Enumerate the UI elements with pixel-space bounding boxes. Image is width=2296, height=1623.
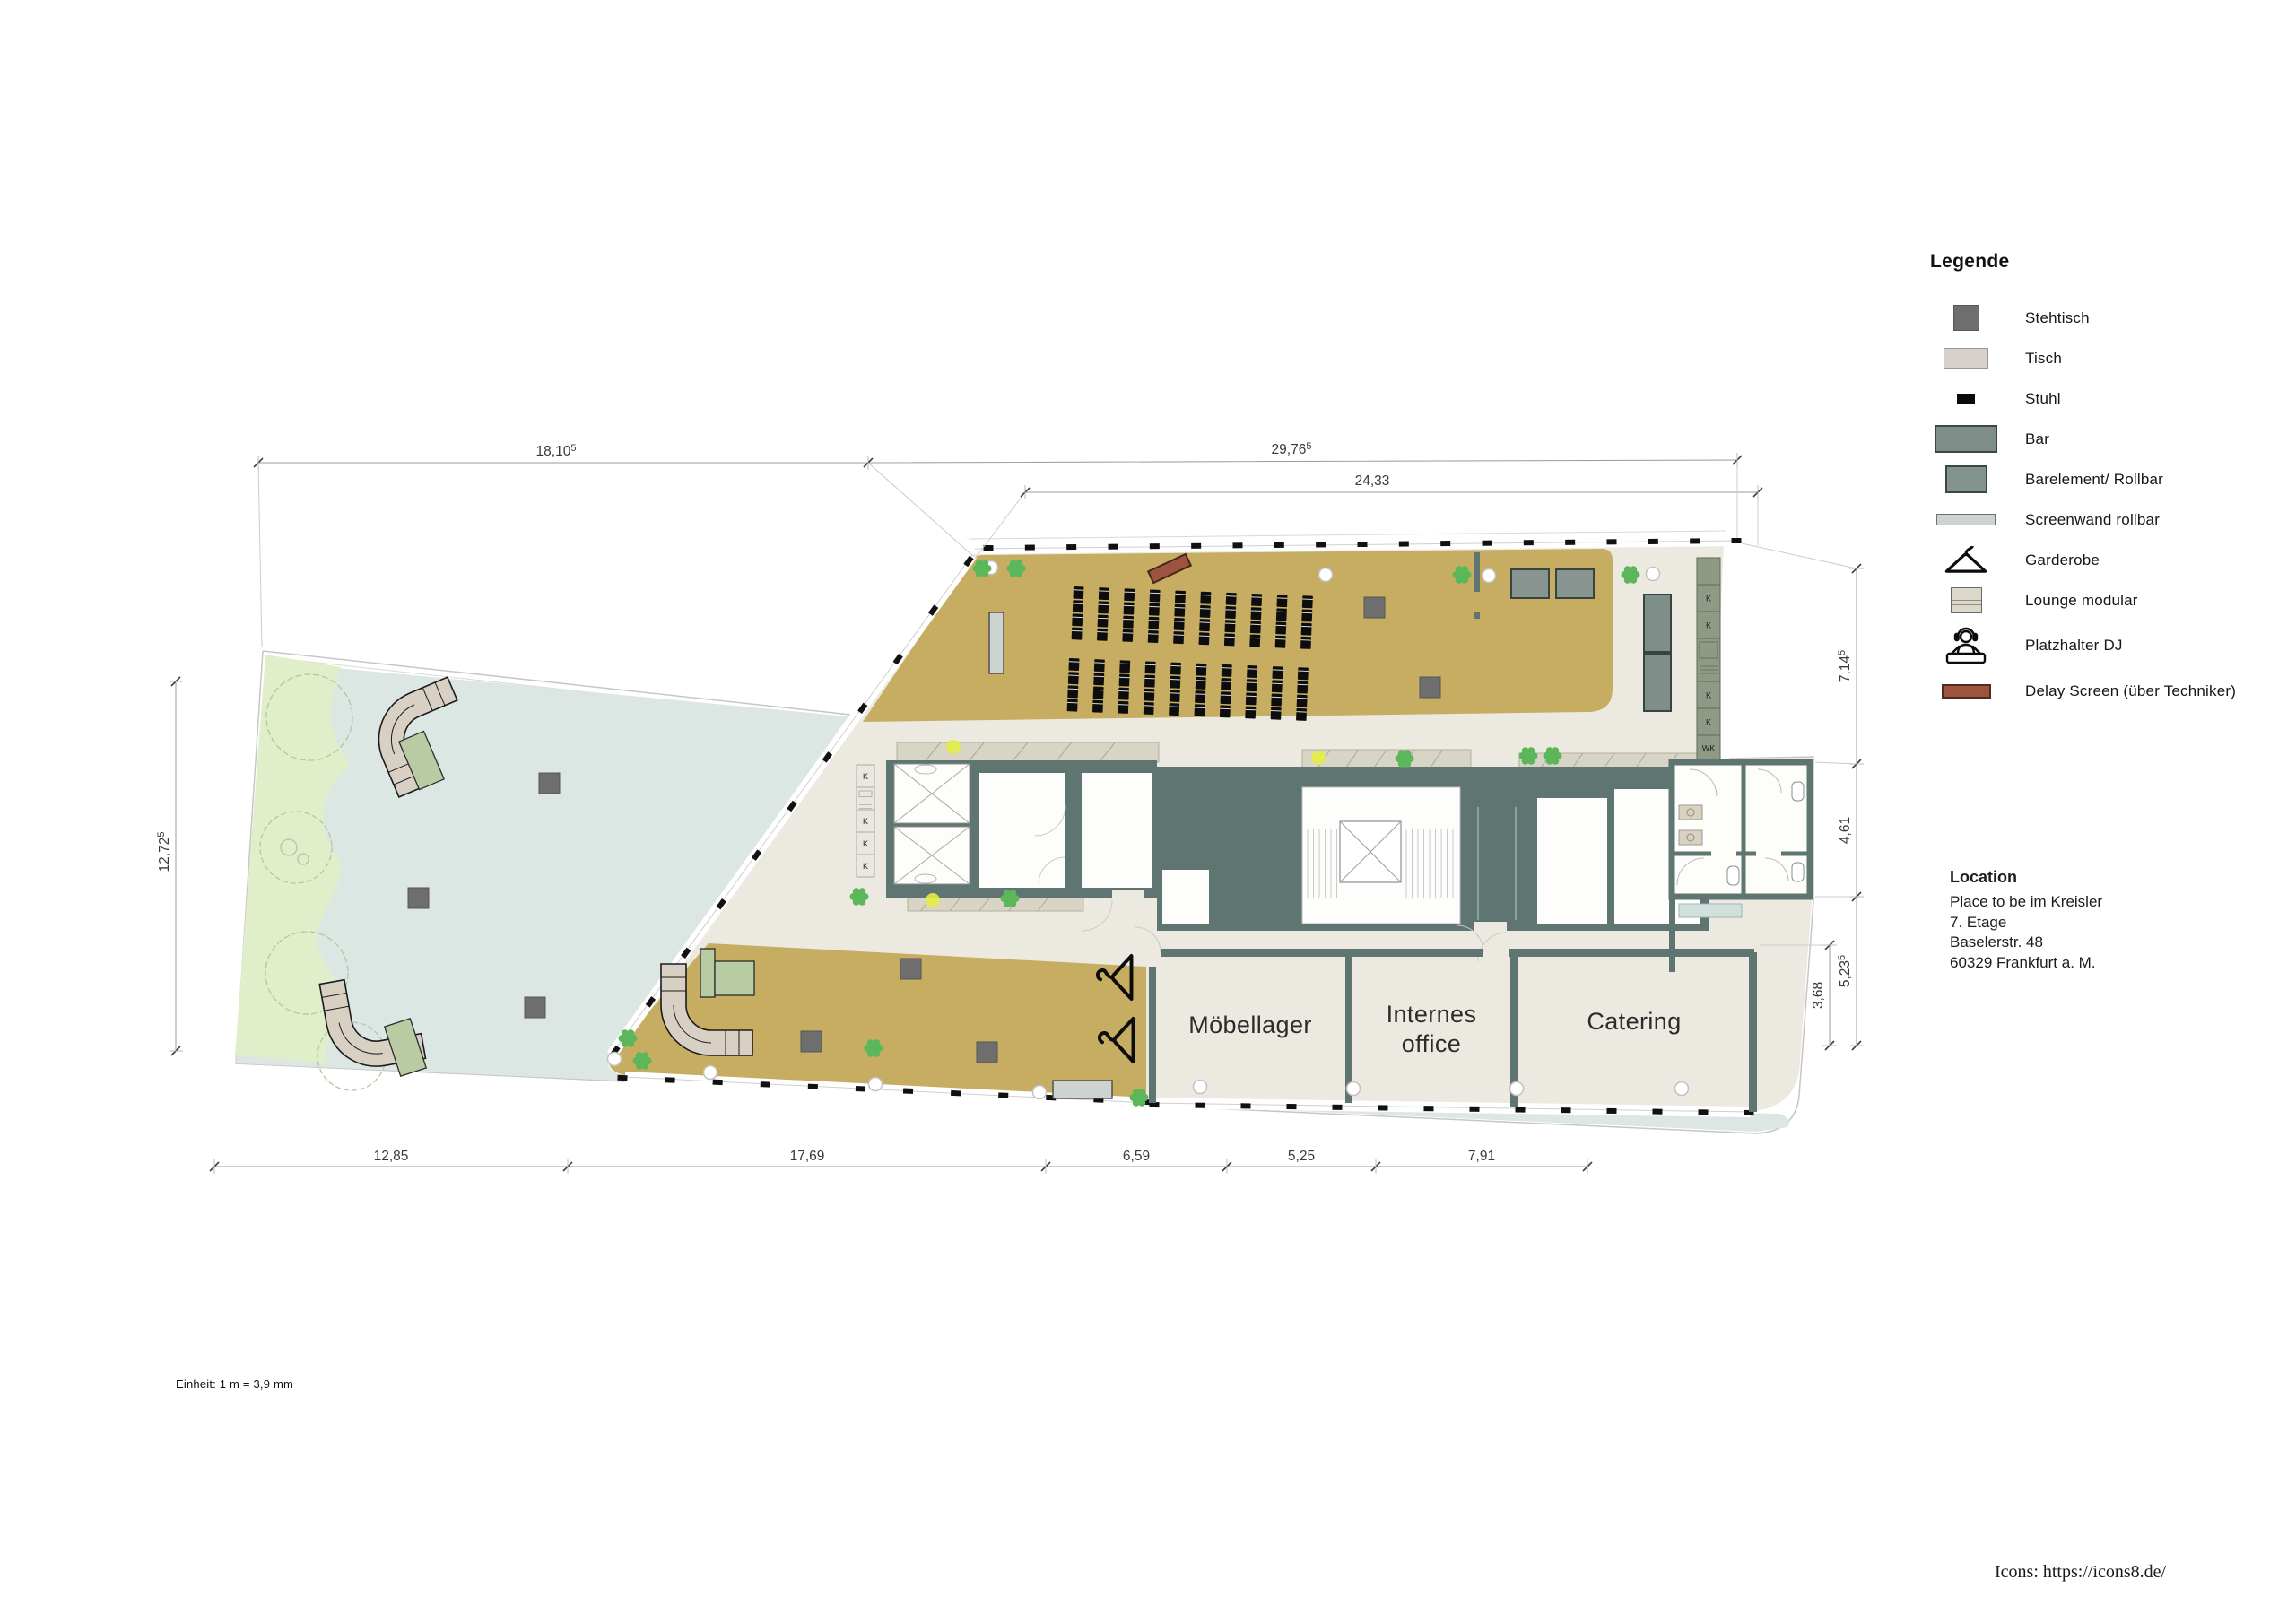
chair [1195, 690, 1205, 703]
light-dot [946, 740, 961, 754]
chair [1148, 630, 1159, 643]
chair [1118, 688, 1129, 700]
chair [1272, 666, 1283, 679]
light-dot [926, 893, 940, 907]
facade-mullion [1524, 540, 1534, 545]
chair [1145, 661, 1156, 673]
chair [1123, 616, 1134, 629]
chair [1124, 602, 1135, 614]
facade-mullion [1357, 542, 1367, 547]
facade-mullion [1399, 542, 1409, 547]
chair [1067, 685, 1078, 698]
bar [1644, 595, 1671, 652]
legend-item-tisch: Tisch [1930, 338, 2296, 378]
standing-table [900, 959, 921, 979]
svg-text:4,61: 4,61 [1838, 817, 1853, 844]
closet-label: K [1706, 691, 1711, 700]
location-line: Baselerstr. 48 [1950, 933, 2255, 953]
chair [1098, 601, 1109, 613]
tisch-swatch [1930, 348, 2002, 369]
chair [1220, 705, 1231, 717]
closet-label: K [863, 772, 868, 781]
facade-mullion [998, 1092, 1008, 1098]
chair [1122, 629, 1133, 642]
room-label-moebellager: Möbellager [1188, 1011, 1312, 1038]
location-line: 60329 Frankfurt a. M. [1950, 953, 2255, 974]
facade-mullion [1690, 538, 1700, 543]
chair [1199, 632, 1210, 645]
chair [1118, 701, 1128, 714]
column [1675, 1082, 1689, 1096]
standing-table [539, 773, 560, 794]
column [1319, 568, 1333, 582]
chair [1220, 691, 1231, 704]
legend-item-delay: Delay Screen (über Techniker) [1930, 671, 2296, 711]
standing-table [801, 1031, 822, 1052]
chair [1093, 687, 1104, 699]
chair [1099, 587, 1109, 600]
screenwand-swatch [1930, 514, 2002, 525]
svg-text:6,59: 6,59 [1123, 1149, 1150, 1164]
bar [1644, 654, 1671, 711]
screenwall-rect [897, 742, 1159, 762]
facade-mullion [808, 1084, 818, 1090]
closet-cell [1697, 558, 1720, 585]
chair [1249, 635, 1260, 647]
chair [1170, 690, 1180, 702]
delay-screen-swatch [1930, 684, 2002, 699]
column [869, 1078, 883, 1091]
chair [1144, 702, 1154, 715]
chair [1200, 605, 1211, 618]
chair [1297, 681, 1308, 693]
svg-text:12,85: 12,85 [374, 1149, 409, 1164]
closet-label: K [863, 839, 868, 848]
chair [1067, 699, 1078, 712]
facade-mullion [951, 1090, 961, 1097]
location-line: 7. Etage [1950, 913, 2255, 933]
svg-text:18,105: 18,105 [536, 443, 577, 459]
svg-text:7,91: 7,91 [1468, 1149, 1495, 1164]
chair [1144, 675, 1155, 688]
room-label-catering: Catering [1587, 1008, 1681, 1035]
screenwall [1053, 1081, 1112, 1098]
standing-table [1420, 677, 1440, 698]
location-line: Place to be im Kreisler [1950, 892, 2255, 913]
legend-item-dj: Platzhalter DJ [1930, 621, 2296, 671]
chair [1119, 660, 1130, 673]
facade-mullion [1698, 1109, 1708, 1115]
facade-mullion [1423, 1106, 1433, 1111]
facade-mullion [713, 1080, 723, 1086]
lounge-swatch [1930, 587, 2002, 613]
chair [1170, 663, 1181, 675]
standing-table [977, 1042, 997, 1063]
event-floor-main [863, 549, 1613, 722]
legend-item-stuhl: Stuhl [1930, 378, 2296, 419]
chair [1246, 679, 1257, 691]
chair [1092, 700, 1103, 713]
chair [1175, 591, 1186, 603]
stuhl-swatch [1930, 394, 2002, 404]
hanger-icon [1930, 546, 2002, 575]
facade-mullion [1482, 541, 1492, 546]
legend-item-stehtisch: Stehtisch [1930, 298, 2296, 338]
dj-icon [1930, 625, 2002, 666]
chair [1196, 677, 1206, 690]
svg-text:7,145: 7,145 [1837, 650, 1853, 682]
chair [1276, 608, 1287, 621]
chair [1200, 592, 1211, 604]
facade-mullion [1515, 1107, 1525, 1112]
facade-mullion [1440, 541, 1450, 546]
svg-text:12,725: 12,725 [156, 832, 172, 872]
column [704, 1066, 717, 1080]
chair [1072, 613, 1083, 626]
column [1347, 1082, 1361, 1096]
closet-band-right: KKKKWK [1697, 558, 1720, 760]
facade-mullion [617, 1075, 627, 1081]
facade-mullion [1652, 1109, 1662, 1115]
column [1194, 1081, 1207, 1094]
closet-label: WK [1702, 744, 1716, 753]
legend-item-barelement: Barelement/ Rollbar [1930, 459, 2296, 499]
column [1510, 1082, 1524, 1096]
column [608, 1053, 622, 1066]
chair [1169, 703, 1179, 716]
standing-table [408, 888, 429, 908]
chair [1250, 621, 1261, 633]
chair [1275, 621, 1286, 634]
facade-mullion [1561, 1107, 1570, 1113]
facade-mullion [1648, 539, 1658, 544]
facade-mullion [1469, 1107, 1479, 1112]
chair [1301, 623, 1312, 636]
closet-label: K [863, 817, 868, 826]
stehtisch-swatch [1930, 305, 2002, 331]
barelement [1556, 569, 1594, 598]
chair [1174, 604, 1185, 617]
chair [1170, 676, 1180, 689]
facade-mullion [1378, 1105, 1387, 1110]
chair [1098, 615, 1109, 628]
chair [1301, 609, 1312, 621]
chair [1068, 658, 1079, 671]
chair [1144, 689, 1154, 701]
facade-mullion [1332, 1105, 1342, 1110]
facade-mullion [1316, 542, 1326, 547]
closet-label: K [1706, 621, 1711, 630]
chair [1199, 619, 1210, 631]
chair [1226, 593, 1237, 605]
svg-text:17,69: 17,69 [790, 1149, 825, 1164]
svg-text:29,765: 29,765 [1272, 441, 1312, 457]
legend-item-bar: Bar [1930, 419, 2296, 459]
chair [1073, 586, 1083, 599]
facade-mullion [903, 1088, 913, 1094]
chair [1094, 659, 1105, 672]
chair [1276, 595, 1287, 607]
chair [1119, 673, 1130, 686]
chair [1251, 594, 1262, 606]
facade-mullion [1150, 543, 1160, 549]
chair [1247, 665, 1257, 678]
chair [1093, 673, 1104, 685]
svg-text:24,33: 24,33 [1355, 473, 1390, 489]
chair [1297, 695, 1308, 707]
closet-band-left: KKKK [857, 765, 874, 877]
location-block: Location Place to be im Kreisler 7. Etag… [1950, 868, 2255, 973]
chair [1196, 664, 1206, 676]
chair [1222, 664, 1232, 677]
facade-mullion [1274, 542, 1284, 548]
facade-mullion [1066, 544, 1076, 550]
chair [1296, 708, 1307, 721]
facade-mullion [1232, 542, 1242, 548]
legend-item-garderobe: Garderobe [1930, 540, 2296, 580]
chair [1195, 704, 1205, 716]
chair [1221, 678, 1231, 690]
chair [1068, 672, 1079, 684]
chair [1150, 589, 1161, 602]
facade-mullion [1565, 540, 1575, 545]
scale-note: Einheit: 1 m = 3,9 mm [176, 1377, 293, 1391]
screenwall-strip [897, 742, 1159, 762]
chair [1225, 606, 1236, 619]
facade-mullion [856, 1086, 865, 1092]
chair [1245, 707, 1256, 719]
facade-mullion [1731, 538, 1741, 543]
screenwall [989, 612, 1004, 673]
standing-table [525, 997, 545, 1018]
chair [1272, 680, 1283, 692]
chair [1149, 603, 1160, 616]
chair [1173, 631, 1184, 644]
barelement-swatch [1930, 465, 2002, 493]
chair [1174, 618, 1185, 630]
closet-cell [1697, 638, 1720, 681]
chair [1224, 633, 1235, 646]
closet-label: K [1706, 718, 1711, 727]
floor-plan-svg: KKKKWK KKKK [0, 0, 2296, 1623]
column [1033, 1086, 1047, 1099]
bar-swatch [1930, 425, 2002, 453]
facade-mullion [1606, 539, 1616, 544]
column [1647, 568, 1660, 581]
facade-mullion [1195, 1103, 1205, 1108]
chair [1298, 667, 1309, 680]
legend: Legende Stehtisch Tisch Stuhl Bar Barele… [1930, 251, 2296, 711]
chair [1271, 707, 1282, 720]
chair [1300, 637, 1311, 649]
chair [1072, 628, 1083, 640]
svg-text:3,68: 3,68 [1811, 982, 1826, 1009]
chair [1250, 607, 1261, 620]
facade-mullion [1108, 544, 1118, 550]
chair [1302, 595, 1313, 608]
svg-text:5,235: 5,235 [1837, 955, 1853, 987]
barelement [1511, 569, 1549, 598]
column [1483, 569, 1496, 583]
chair [1246, 692, 1257, 705]
legend-title: Legende [1930, 251, 2296, 273]
legend-item-screenwand: Screenwand rollbar [1930, 499, 2296, 540]
svg-text:5,25: 5,25 [1288, 1149, 1315, 1164]
facade-mullion [1025, 545, 1035, 551]
chair [1124, 588, 1135, 601]
location-title: Location [1950, 868, 2255, 887]
chair [1073, 600, 1083, 612]
chair [1275, 636, 1286, 648]
facade-mullion [1191, 543, 1201, 549]
light-dot [1311, 751, 1326, 765]
closet-label: K [863, 862, 868, 871]
chair [1148, 617, 1159, 629]
legend-item-lounge: Lounge modular [1930, 580, 2296, 621]
chair [1271, 693, 1282, 706]
facade-mullion [761, 1081, 770, 1088]
closet-label: K [1706, 595, 1711, 603]
chair [1224, 620, 1235, 632]
icons-credit: Icons: https://icons8.de/ [1995, 1562, 2166, 1583]
chair [1097, 629, 1108, 641]
facade-mullion [1286, 1104, 1296, 1109]
facade-mullion [1606, 1108, 1616, 1114]
floor-plan-page: { "legend": { "title": "Legende", "items… [0, 0, 2296, 1623]
facade-mullion [665, 1077, 674, 1083]
facade-mullion [1240, 1103, 1250, 1108]
standing-table [1364, 597, 1385, 618]
